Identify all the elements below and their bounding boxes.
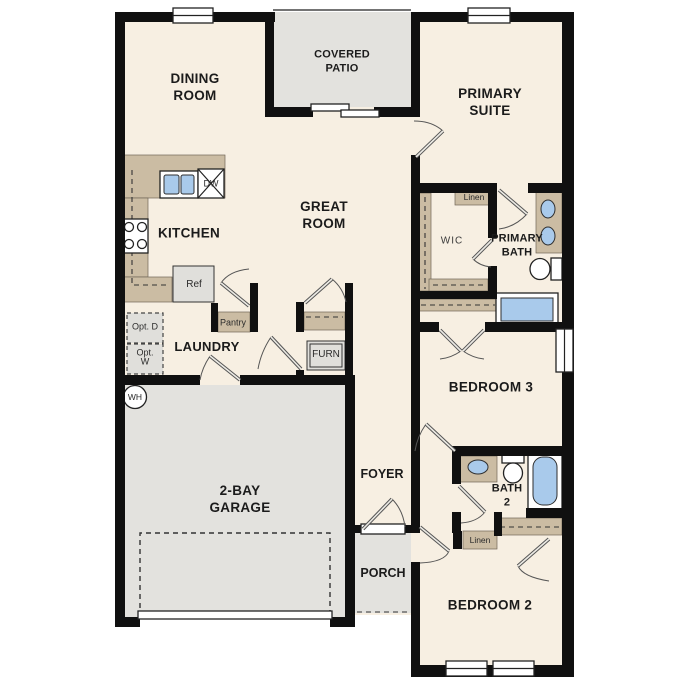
bath2-sink xyxy=(468,460,488,474)
bath2-tub-basin xyxy=(533,457,557,505)
label-refrigerator: Ref xyxy=(186,280,202,291)
room-label-porch: PORCH xyxy=(360,566,405,580)
label-dishwasher: DW xyxy=(204,179,219,188)
primary-toilet-icon xyxy=(530,259,550,280)
label-opt-washer: Opt. W xyxy=(132,349,158,368)
label-pantry: Pantry xyxy=(220,318,246,327)
sink-basin-right xyxy=(181,175,194,194)
room-label-great-room: GREAT ROOM xyxy=(289,199,359,233)
primary-shower-pan xyxy=(501,298,553,321)
room-label-bedroom-3: BEDROOM 3 xyxy=(449,380,533,397)
patio-slider-panel-2 xyxy=(341,110,379,117)
floor-plan: DINING ROOM COVERED PATIO PRIMARY SUITE … xyxy=(0,0,687,687)
sink-basin-left xyxy=(164,175,179,194)
bath2-toilet-icon xyxy=(504,463,523,483)
label-opt-dryer: Opt. D xyxy=(132,322,158,331)
room-label-primary-bath: PRIMARY BATH xyxy=(481,232,553,260)
primary-sink-1 xyxy=(541,200,555,218)
floor-plan-drawing xyxy=(0,0,687,687)
room-label-primary-suite: PRIMARY SUITE xyxy=(448,86,532,120)
room-label-laundry: LAUNDRY xyxy=(174,339,239,355)
burner-icon xyxy=(138,240,147,249)
garage-door xyxy=(138,611,332,619)
room-label-covered-patio: COVERED PATIO xyxy=(307,48,377,76)
kitchen-counter-corner xyxy=(123,277,172,302)
label-linen-hall: Linen xyxy=(470,535,491,545)
burner-icon xyxy=(138,223,147,232)
room-label-wic: WIC xyxy=(441,236,463,247)
label-water-heater: WH xyxy=(128,392,142,402)
label-furnace: FURN xyxy=(312,350,340,361)
primary-toilet-tank xyxy=(551,258,562,280)
room-label-dining: DINING ROOM xyxy=(160,71,230,105)
label-linen-primary: Linen xyxy=(464,192,485,202)
furnace-closet-shelf xyxy=(304,312,345,330)
room-label-foyer: FOYER xyxy=(360,467,403,481)
room-label-garage: 2-BAY GARAGE xyxy=(200,483,280,517)
room-label-kitchen: KITCHEN xyxy=(158,226,220,243)
burner-icon xyxy=(125,240,134,249)
room-label-bedroom-2: BEDROOM 2 xyxy=(448,598,532,615)
burner-icon xyxy=(125,223,134,232)
room-label-bath-2: BATH 2 xyxy=(489,482,525,510)
